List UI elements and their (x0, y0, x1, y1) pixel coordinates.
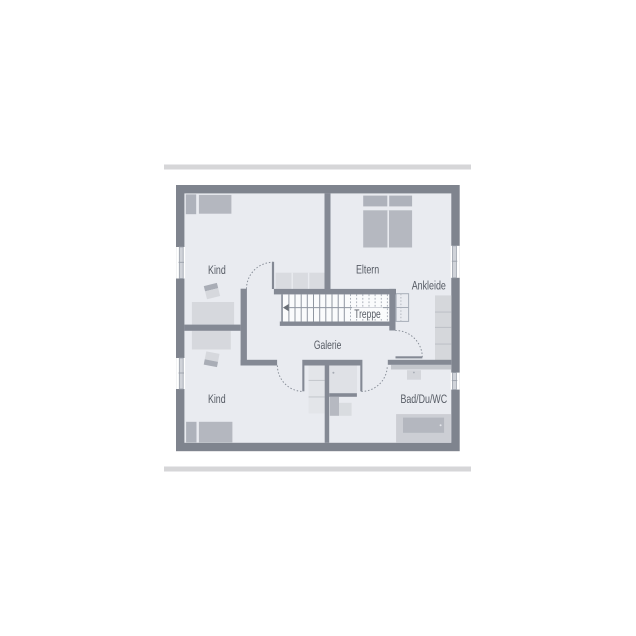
svg-text:Ankleide: Ankleide (412, 279, 446, 293)
svg-text:Kind: Kind (208, 392, 226, 406)
svg-text:Eltern: Eltern (356, 263, 379, 277)
svg-text:Galerie: Galerie (314, 338, 342, 352)
svg-text:Bad/Du/WC: Bad/Du/WC (400, 392, 447, 406)
svg-text:Kind: Kind (208, 263, 226, 277)
svg-text:Treppe: Treppe (354, 307, 381, 321)
